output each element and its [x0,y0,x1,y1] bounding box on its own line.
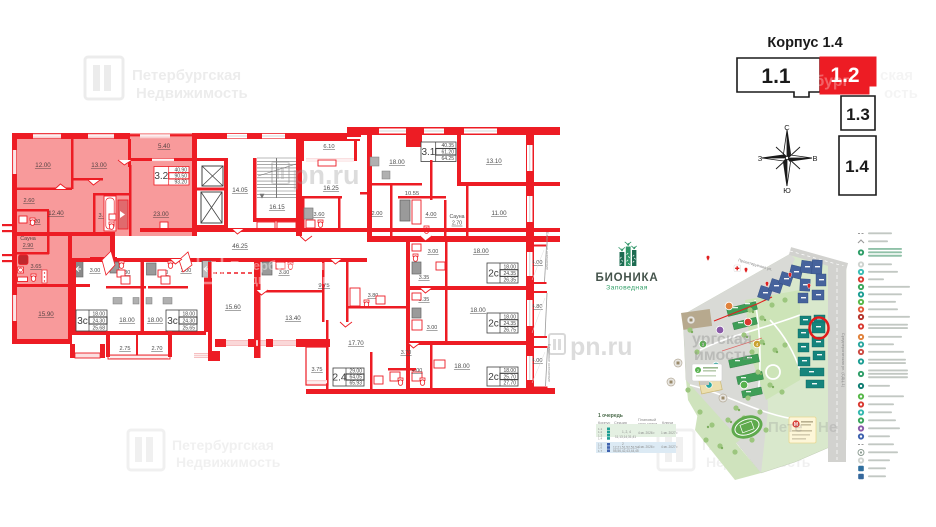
svg-text:Петербургская: Петербургская [230,258,325,273]
svg-text:Петербургская: Петербургская [132,67,241,84]
svg-text:Не: Не [818,419,837,436]
svg-text:18.00: 18.00 [147,317,163,324]
svg-text:15.60: 15.60 [225,304,241,311]
svg-text:1, 2, 4: 1, 2, 4 [622,430,631,434]
svg-text:2с: 2с [488,319,499,330]
svg-text:46.25: 46.25 [232,243,248,250]
svg-text:18.00: 18.00 [389,159,405,166]
svg-text:3.75: 3.75 [312,367,323,373]
svg-text:2.60: 2.60 [24,198,35,204]
svg-text:13.00: 13.00 [91,162,107,169]
svg-text:БИОНИКА: БИОНИКА [596,272,659,284]
svg-text:40.35: 40.35 [441,143,454,149]
svg-text:5.40: 5.40 [158,143,171,150]
svg-text:11,13,14,31,41: 11,13,14,31,41 [615,435,636,439]
svg-text:1 кв. 2027 г.: 1 кв. 2027 г. [661,431,678,435]
svg-text:тербург: тербург [788,73,850,90]
svg-text:18.00: 18.00 [470,307,486,314]
svg-text:18.00: 18.00 [92,312,105,318]
svg-text:ургская: ургская [692,331,752,348]
svg-text:ость: ость [884,85,918,102]
svg-text:2.75: 2.75 [120,346,131,352]
svg-text:Сауна: Сауна [20,236,36,242]
svg-text:14.05: 14.05 [232,187,248,194]
svg-text:З: З [758,154,763,163]
svg-text:15.90: 15.90 [38,311,54,318]
svg-text:13.10: 13.10 [486,158,502,165]
svg-text:2с: 2с [488,372,499,383]
svg-text:Недвижимость: Недвижимость [176,454,281,470]
svg-text:Среднерогатская ул. (СДЦ-1): Среднерогатская ул. (СДЦ-1) [841,333,846,388]
svg-text:1.1: 1.1 [761,65,791,88]
svg-text:Ю: Ю [783,186,791,195]
svg-text:3.00: 3.00 [428,249,439,255]
svg-text:4.00: 4.00 [532,260,543,266]
svg-text:3с: 3с [167,316,178,327]
svg-text:17.70: 17.70 [348,340,364,347]
svg-text:24.35: 24.35 [503,271,516,277]
svg-text:23.00: 23.00 [153,211,169,218]
svg-text:25.65: 25.65 [182,326,195,332]
svg-text:Петербургская: Петербургская [172,437,274,453]
svg-text:11.00: 11.00 [491,210,507,217]
svg-text:3.00: 3.00 [427,325,438,331]
svg-text:2.70: 2.70 [452,221,462,227]
svg-text:4 кв. 2026 г.: 4 кв. 2026 г. [638,445,655,449]
svg-text:4 кв. 2026 г.: 4 кв. 2026 г. [638,431,655,435]
svg-text:Заповедная: Заповедная [606,285,648,292]
svg-text:90.50: 90.50 [174,174,187,180]
svg-text:3.00: 3.00 [90,268,101,274]
svg-text:1 очередь: 1 очередь [598,413,623,419]
svg-text:18.00: 18.00 [503,264,516,270]
svg-text:26.35: 26.35 [503,278,516,284]
svg-text:27.70: 27.70 [503,381,516,387]
svg-text:25.68: 25.68 [92,326,105,332]
svg-text:Недвижимость: Недвижимость [233,272,330,287]
svg-text:4 кв. 2027 г.: 4 кв. 2027 г. [661,445,678,449]
svg-text:55,56,42,43,44,45: 55,56,42,43,44,45 [613,449,639,453]
svg-text:12.40: 12.40 [48,210,64,217]
svg-text:Сауна: Сауна [450,214,465,220]
svg-text:18.00: 18.00 [182,312,195,318]
svg-text:2.70: 2.70 [152,346,163,352]
svg-text:4.00: 4.00 [426,212,437,218]
svg-text:3с: 3с [77,316,88,327]
svg-text:ская: ская [880,67,913,84]
svg-text:pn.ru: pn.ru [292,160,360,190]
svg-text:18.00: 18.00 [454,363,470,370]
svg-text:40.90: 40.90 [174,167,187,173]
svg-text:61.20: 61.20 [441,150,454,156]
svg-text:3.1: 3.1 [421,147,435,158]
svg-text:Балконное остекление: Балконное остекление [545,232,549,270]
svg-text:3.60: 3.60 [314,212,325,218]
svg-text:2.00: 2.00 [372,211,383,217]
svg-text:24.30: 24.30 [92,319,105,325]
svg-text:3.2: 3.2 [154,171,168,182]
svg-text:6.10: 6.10 [323,144,334,150]
svg-text:16.15: 16.15 [269,204,285,211]
svg-text:3.70: 3.70 [401,350,412,356]
svg-text:4.00: 4.00 [532,358,543,364]
svg-text:1.3: 1.3 [846,105,870,124]
svg-text:26.75: 26.75 [503,328,516,334]
svg-text:65.93: 65.93 [349,381,362,387]
svg-text:2с: 2с [488,269,499,280]
svg-text:18.00: 18.00 [503,368,516,374]
svg-text:pn.ru: pn.ru [570,333,633,361]
svg-text:Корпус 1.4: Корпус 1.4 [767,35,842,51]
svg-text:Пете: Пете [768,419,803,436]
svg-text:В: В [812,154,817,163]
svg-text:18.00: 18.00 [473,248,489,255]
svg-text:13.40: 13.40 [285,315,301,322]
svg-text:24.30: 24.30 [182,319,195,325]
svg-text:Недвижимость: Недвижимость [136,85,248,102]
svg-text:64.25: 64.25 [441,156,454,162]
svg-text:2.90: 2.90 [23,243,34,249]
svg-text:25.70: 25.70 [503,374,516,380]
svg-text:1.7: 1.7 [598,449,603,453]
svg-text:18.00: 18.00 [119,317,135,324]
svg-text:3.35: 3.35 [419,275,430,281]
svg-text:12.00: 12.00 [35,162,51,169]
svg-text:имость: имость [694,347,752,364]
svg-text:1.4: 1.4 [845,157,869,176]
svg-text:2.4: 2.4 [333,373,347,384]
svg-text:18.00: 18.00 [503,314,516,320]
svg-text:93.20: 93.20 [174,180,187,186]
svg-text:3.65: 3.65 [31,264,42,270]
svg-text:24.35: 24.35 [503,321,516,327]
svg-text:1.4: 1.4 [598,437,603,441]
